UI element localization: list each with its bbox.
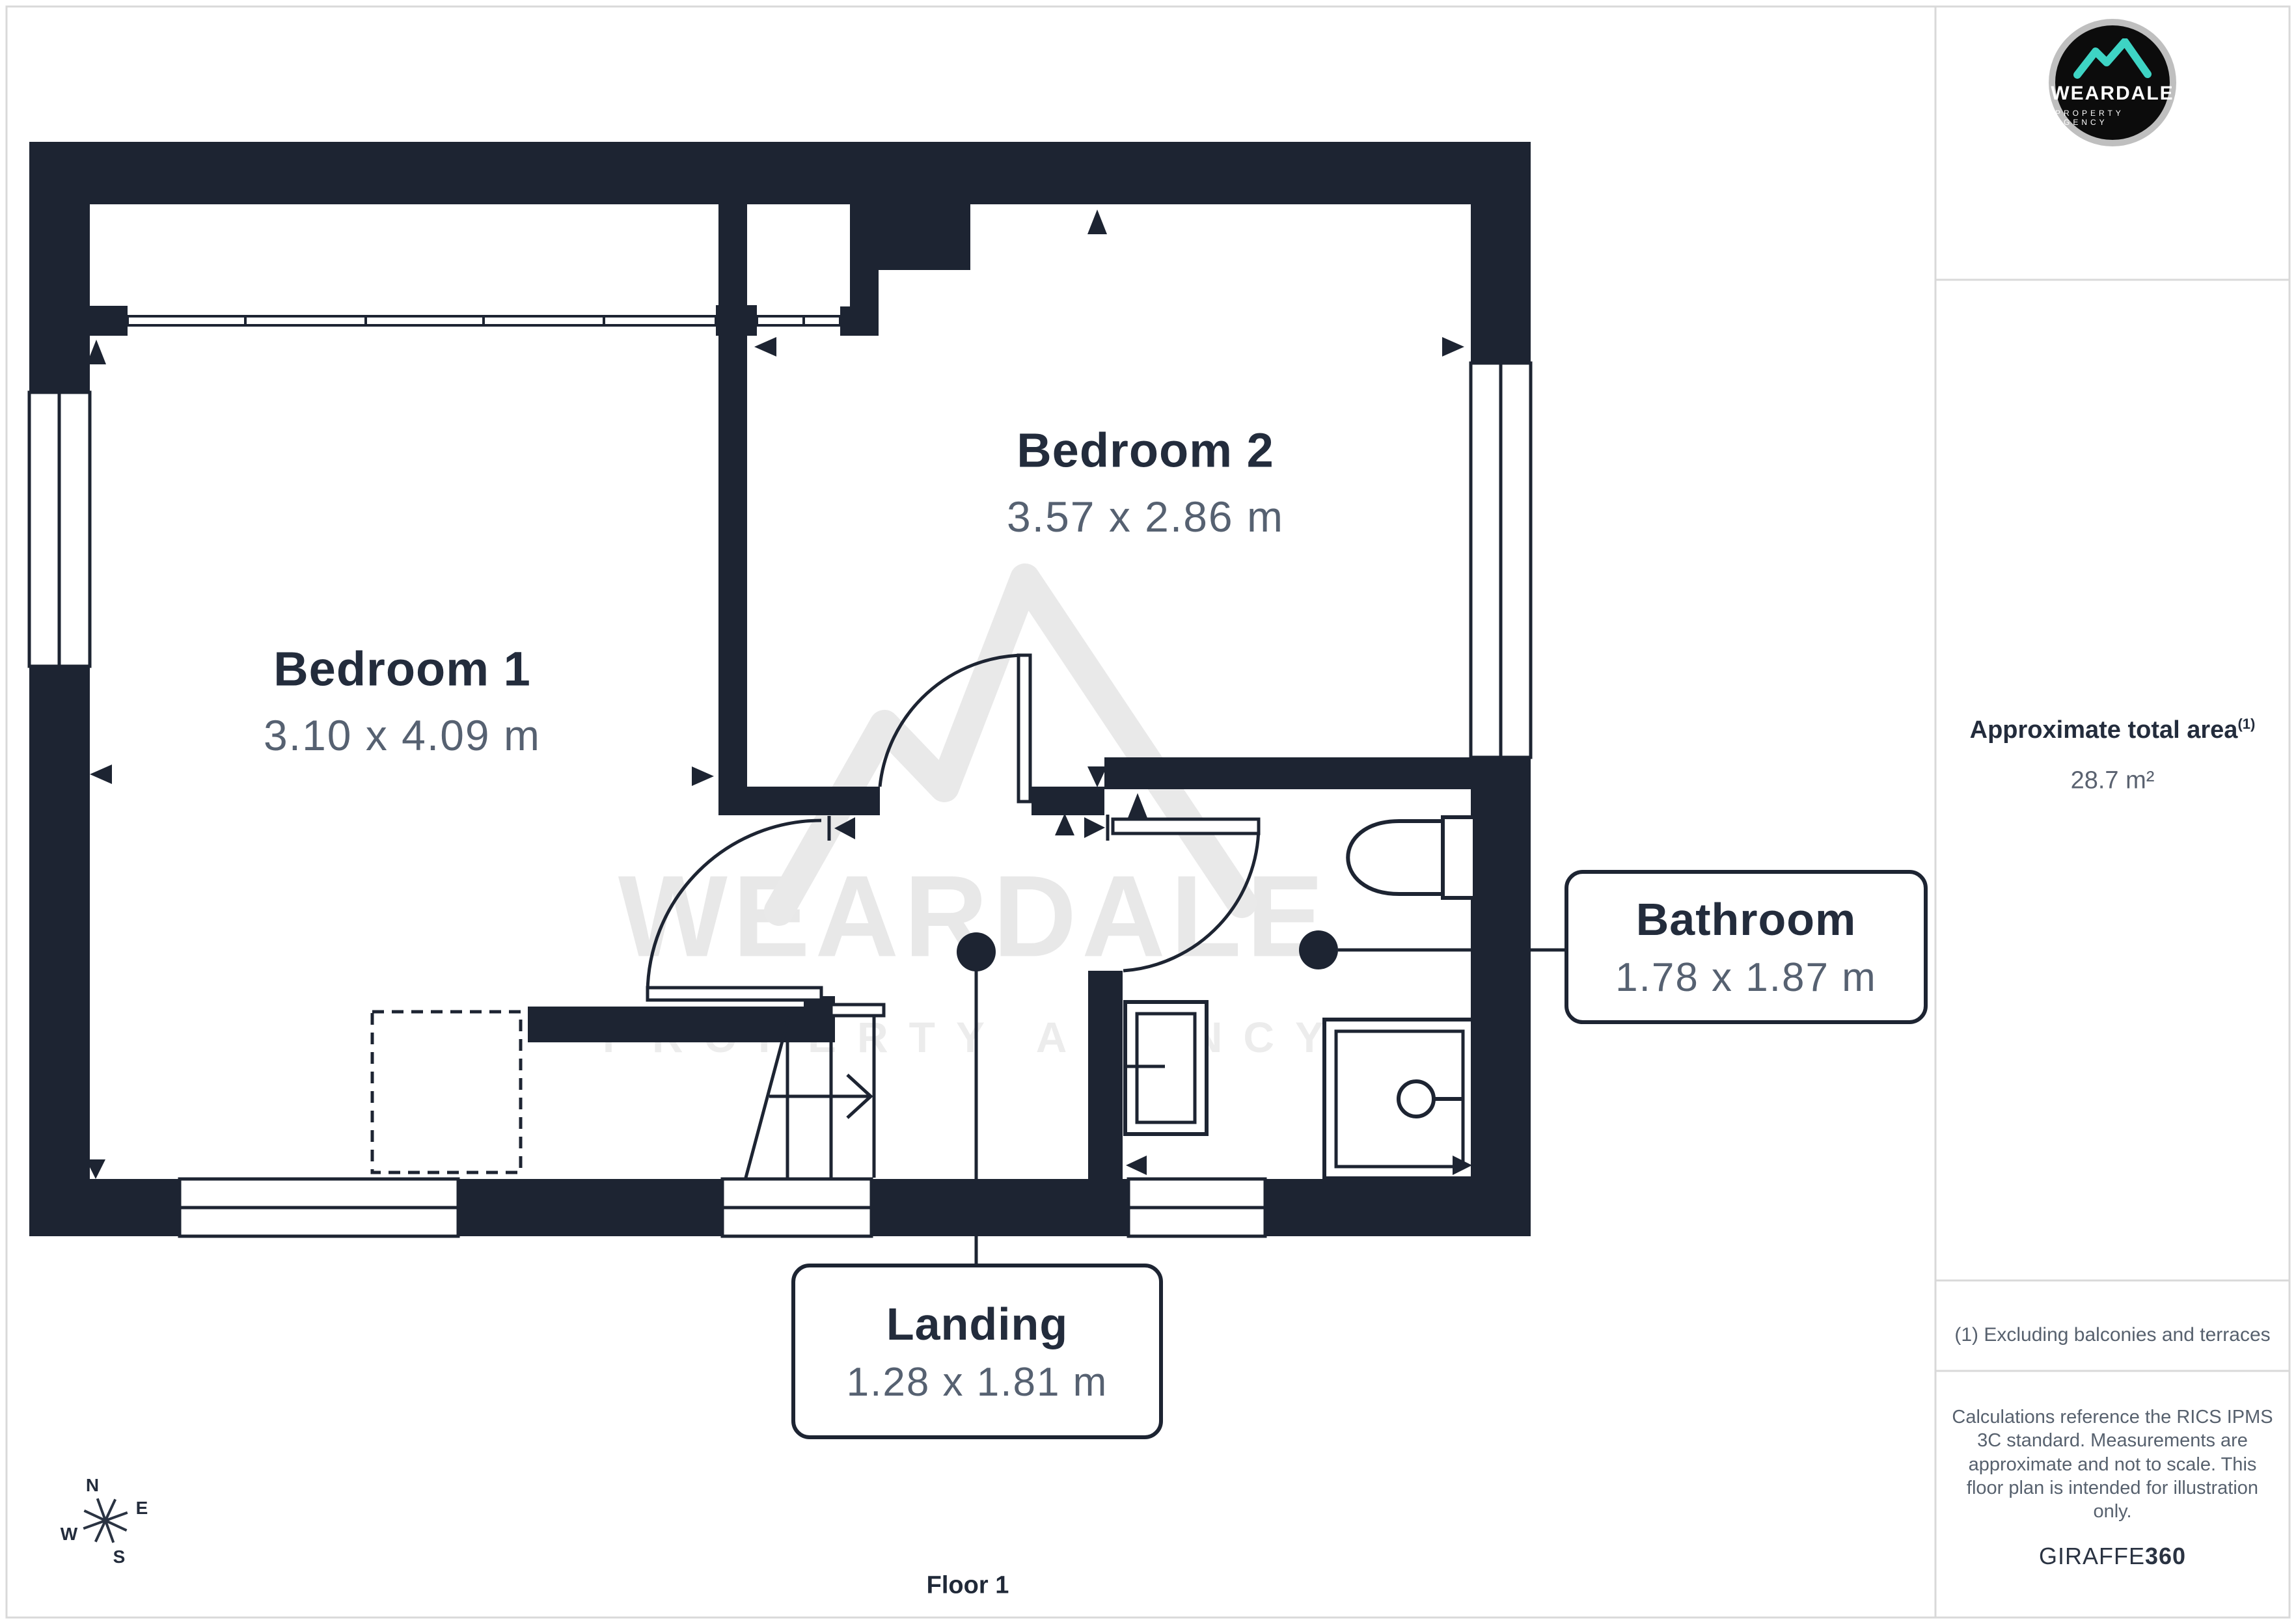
- total-area-superscript: (1): [2237, 716, 2255, 732]
- void-dashed-outline: [372, 1012, 521, 1172]
- wall-bathroom-north-left: [1032, 787, 1104, 815]
- arrow-bedroom1-right: [692, 766, 714, 786]
- wall-left-upper: [29, 142, 90, 392]
- compass-east-label: E: [136, 1498, 148, 1518]
- stairs-rail: [831, 1005, 884, 1016]
- arrow-bathroom-left: [1126, 1156, 1147, 1175]
- shower-icon: [1324, 1020, 1475, 1178]
- bedroom2-dimensions: 3.57 x 2.86 m: [1007, 492, 1284, 541]
- landing-callout: Landing 1.28 x 1.81 m: [791, 1264, 1163, 1439]
- bathroom-callout: Bathroom 1.78 x 1.87 m: [1565, 870, 1928, 1024]
- bedroom2-label: Bedroom 2: [1017, 423, 1274, 478]
- chimney-leg: [850, 204, 879, 336]
- wall-bedroom-divider: [718, 204, 747, 787]
- compass-west-label: W: [61, 1524, 78, 1544]
- arrow-bedroom2-left: [754, 337, 776, 357]
- bathroom-dot: [1299, 930, 1338, 969]
- bedroom1-label: Bedroom 1: [273, 642, 531, 697]
- wardrobe-track-bedroom1: [128, 316, 716, 325]
- sidebar: WEARDALE PROPERTY AGENCY Approximate tot…: [1935, 7, 2289, 1617]
- wall-right-upper: [1471, 142, 1531, 363]
- radiator-icon: [1125, 1002, 1207, 1134]
- walls: [29, 142, 1531, 1236]
- wardrobe-end-block-left: [89, 306, 128, 336]
- compass-north-label: N: [86, 1475, 99, 1495]
- bathroom-fixtures: [1125, 817, 1475, 1178]
- compass-rose-icon: [83, 1498, 128, 1543]
- arrow-landing-right: [1084, 817, 1105, 838]
- agency-logo-tagline: PROPERTY AGENCY: [2055, 109, 2170, 127]
- bedroom2-door-leaf: [1018, 655, 1030, 802]
- footnote-text: (1) Excluding balconies and terraces: [1954, 1324, 2270, 1346]
- window-bottom-landing: [722, 1179, 871, 1236]
- watermark-mountain-icon: [779, 578, 1242, 911]
- total-area-value: 28.7 m²: [2071, 767, 2155, 795]
- compass-south-label: S: [113, 1547, 126, 1567]
- arrow-bedroom2-right: [1442, 337, 1464, 357]
- bedroom1-door-leaf: [648, 988, 821, 1000]
- wardrobe-end-block-mid: [716, 305, 757, 336]
- agency-logo: WEARDALE PROPERTY AGENCY: [2049, 19, 2176, 146]
- giraffe360-brand: GIRAFFE: [2039, 1543, 2145, 1569]
- arrow-landing-up: [1055, 813, 1074, 835]
- giraffe360-suffix: 360: [2145, 1543, 2186, 1569]
- total-area-title: Approximate total area(1): [1970, 716, 2256, 744]
- wall-bathroom-west: [1088, 971, 1123, 1179]
- bathroom-dimensions: 1.78 x 1.87 m: [1615, 954, 1877, 1001]
- bedroom1-dimensions: 3.10 x 4.09 m: [264, 710, 541, 760]
- window-right: [1471, 363, 1531, 757]
- landing-label: Landing: [886, 1298, 1068, 1350]
- wall-bathroom-north: [1104, 757, 1471, 789]
- wall-stairs: [528, 1007, 804, 1042]
- window-bottom-bedroom1: [180, 1179, 458, 1236]
- wall-left-lower: [29, 666, 90, 1236]
- disclaimer-text: Calculations reference the RICS IPMS 3C …: [1950, 1405, 2275, 1523]
- wall-top: [29, 142, 1531, 204]
- wardrobe-track-bedroom2: [757, 316, 840, 325]
- total-area-title-text: Approximate total area: [1970, 716, 2238, 744]
- agency-logo-brand: WEARDALE: [2051, 83, 2174, 105]
- toilet-icon: [1348, 817, 1475, 898]
- window-bottom-bathroom: [1128, 1179, 1265, 1236]
- wall-right-lower: [1471, 757, 1531, 1236]
- window-left: [29, 392, 90, 666]
- landing-dimensions: 1.28 x 1.81 m: [847, 1359, 1108, 1405]
- floor-label: Floor 1: [927, 1572, 1009, 1600]
- agency-logo-mountain-icon: [2073, 38, 2152, 79]
- bathroom-door-leaf: [1113, 819, 1259, 833]
- giraffe360-credit: GIRAFFE360: [2039, 1543, 2186, 1570]
- floorplan-page: WEARDALE PROPERTY AGENCY: [0, 0, 2296, 1624]
- arrow-bedroom2-down: [1087, 766, 1107, 787]
- arrow-bedroom2-up: [1087, 210, 1107, 234]
- bathroom-label: Bathroom: [1636, 893, 1857, 945]
- wall-bedroom2-doorway: [718, 787, 880, 815]
- arrow-bathroom-up: [1128, 793, 1147, 818]
- arrow-bedroom1-left: [90, 765, 112, 784]
- landing-dot: [957, 932, 996, 971]
